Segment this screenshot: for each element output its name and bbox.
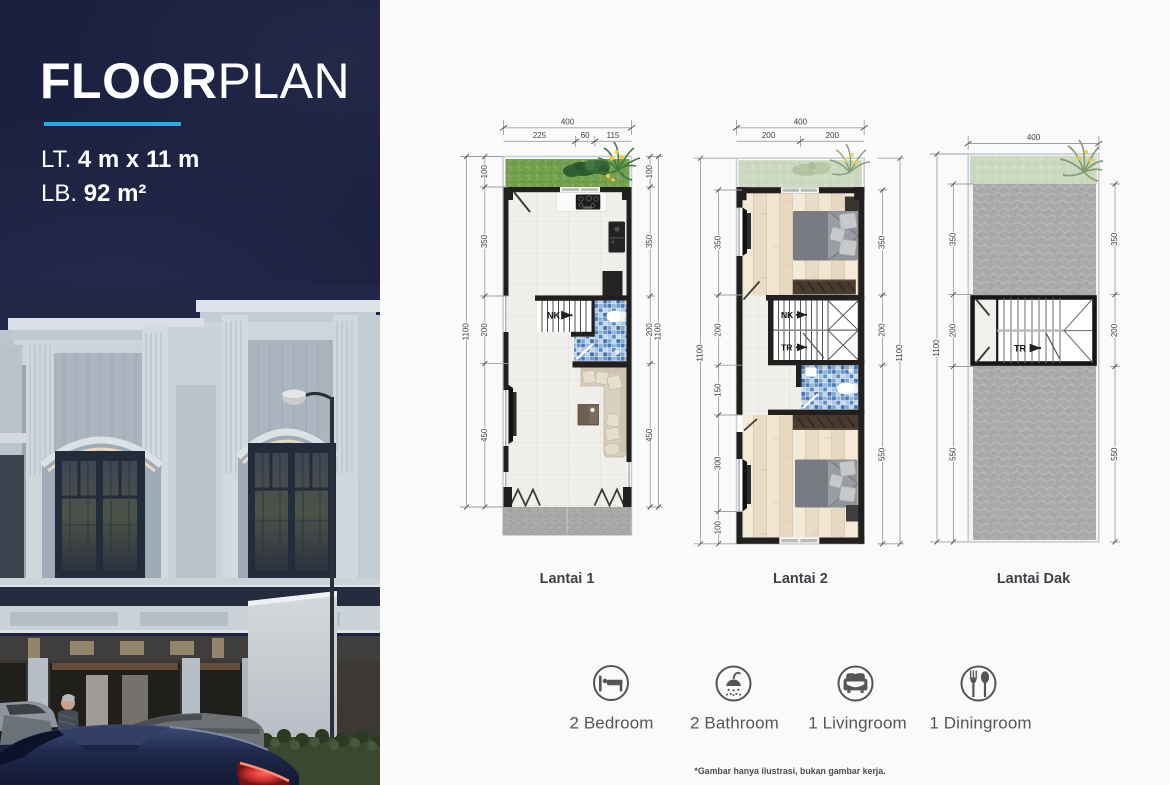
svg-text:NK: NK — [547, 311, 560, 321]
svg-text:450: 450 — [480, 428, 489, 442]
svg-text:350: 350 — [878, 235, 887, 249]
svg-text:Lantai 2: Lantai 2 — [773, 571, 828, 587]
svg-text:350: 350 — [1110, 232, 1119, 246]
svg-text:350: 350 — [714, 235, 723, 249]
svg-text:TR: TR — [781, 343, 792, 353]
svg-text:*Gambar hanya ilustrasi, bukan: *Gambar hanya ilustrasi, bukan gambar ke… — [694, 766, 885, 776]
svg-text:200: 200 — [826, 131, 840, 140]
svg-text:225: 225 — [533, 131, 547, 140]
svg-text:100: 100 — [714, 520, 723, 534]
svg-text:350: 350 — [645, 234, 654, 248]
svg-text:200: 200 — [1110, 323, 1119, 337]
svg-text:400: 400 — [794, 118, 808, 127]
svg-text:350: 350 — [948, 232, 957, 246]
svg-text:550: 550 — [1110, 447, 1119, 461]
svg-text:Lantai Dak: Lantai Dak — [997, 571, 1071, 587]
svg-text:TR: TR — [1014, 344, 1026, 354]
svg-text:550: 550 — [948, 447, 957, 461]
svg-text:1100: 1100 — [932, 339, 941, 357]
svg-text:1 Diningroom: 1 Diningroom — [929, 714, 1031, 733]
svg-text:1100: 1100 — [696, 344, 705, 362]
svg-text:550: 550 — [878, 447, 887, 461]
svg-text:1100: 1100 — [895, 344, 904, 362]
svg-text:200: 200 — [762, 131, 776, 140]
svg-text:1100: 1100 — [462, 323, 471, 341]
svg-text:60: 60 — [581, 131, 590, 140]
svg-text:200: 200 — [878, 323, 887, 337]
svg-text:200: 200 — [948, 323, 957, 337]
svg-text:1 Livingroom: 1 Livingroom — [808, 714, 907, 733]
svg-text:400: 400 — [561, 118, 575, 127]
svg-text:400: 400 — [1027, 133, 1041, 142]
svg-text:Lantai 1: Lantai 1 — [540, 571, 595, 587]
svg-text:200: 200 — [480, 323, 489, 337]
svg-text:300: 300 — [714, 456, 723, 470]
svg-text:200: 200 — [714, 323, 723, 337]
svg-text:450: 450 — [645, 428, 654, 442]
svg-text:115: 115 — [607, 131, 620, 140]
svg-text:2 Bedroom: 2 Bedroom — [569, 714, 653, 733]
svg-text:150: 150 — [714, 383, 723, 397]
svg-text:1100: 1100 — [654, 323, 663, 341]
svg-text:350: 350 — [480, 234, 489, 248]
svg-text:NK: NK — [781, 310, 794, 320]
svg-text:100: 100 — [480, 164, 489, 178]
svg-text:100: 100 — [645, 164, 654, 178]
svg-text:2 Bathroom: 2 Bathroom — [690, 714, 779, 733]
